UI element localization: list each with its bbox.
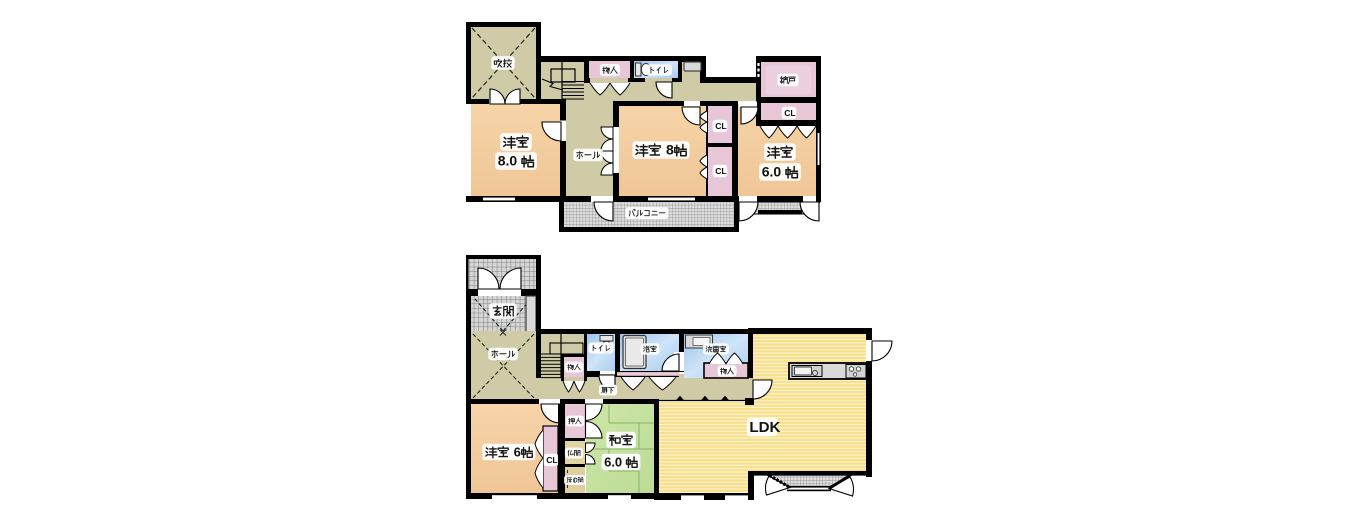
svg-text:CL: CL <box>784 108 795 118</box>
svg-text:6.0: 6.0 <box>762 164 782 180</box>
svg-text:CL: CL <box>715 121 726 131</box>
svg-text:LDK: LDK <box>749 419 780 436</box>
svg-text:8: 8 <box>666 142 674 158</box>
svg-text:6: 6 <box>514 444 521 459</box>
svg-text:CL: CL <box>715 166 726 176</box>
svg-text:6.0: 6.0 <box>604 454 622 469</box>
svg-text:CL: CL <box>546 455 557 465</box>
svg-text:8.0: 8.0 <box>498 153 518 169</box>
